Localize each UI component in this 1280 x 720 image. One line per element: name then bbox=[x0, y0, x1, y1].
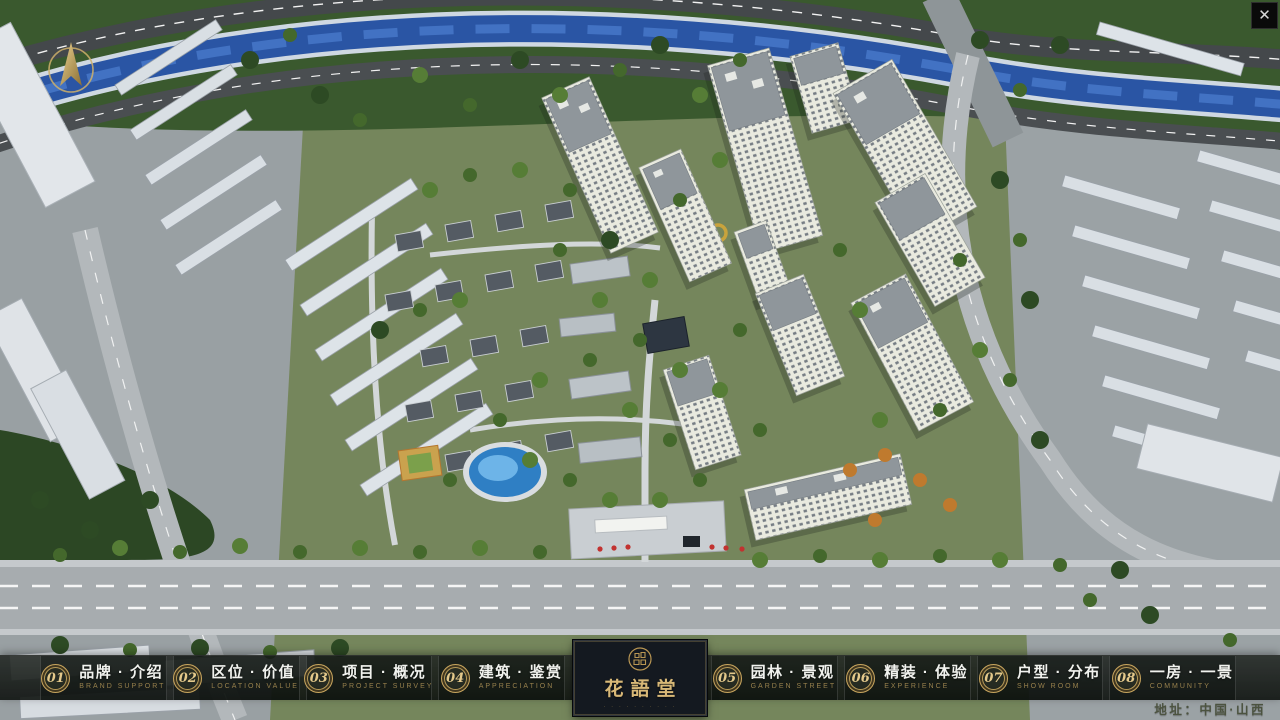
nav-number: 05 bbox=[718, 671, 736, 686]
swimming-pool bbox=[463, 442, 547, 502]
nav-number-badge: 06 bbox=[846, 664, 875, 693]
nav-label-zh: 精装 · 体验 bbox=[884, 665, 968, 682]
main-entrance bbox=[569, 501, 745, 559]
nav-label-zh: 品牌 · 介绍 bbox=[79, 665, 163, 682]
nav-item-architecture[interactable]: 04 建筑 · 鉴赏APPRECIATION bbox=[438, 656, 565, 700]
nav-label-en: APPRECIATION bbox=[479, 683, 555, 691]
nav-label-zh: 区位 · 价值 bbox=[211, 665, 295, 682]
compass-north-icon bbox=[42, 38, 100, 98]
nav-number-badge: 03 bbox=[304, 664, 333, 693]
nav-item-location-value[interactable]: 02 区位 · 价值LOCATION VALUE bbox=[173, 656, 300, 700]
nav-number: 07 bbox=[984, 671, 1002, 686]
nav-item-project-overview[interactable]: 03 项目 · 概况PROJECT SURVEY bbox=[306, 656, 433, 700]
nav-number-badge: 02 bbox=[173, 664, 202, 693]
nav-number: 08 bbox=[1117, 671, 1135, 686]
close-button[interactable]: ✕ bbox=[1251, 2, 1278, 29]
nav-number-badge: 05 bbox=[713, 664, 742, 693]
nav-label-zh: 园林 · 景观 bbox=[751, 665, 835, 682]
nav-label-zh: 一房 · 一景 bbox=[1150, 665, 1234, 682]
nav-label-en: COMMUNITY bbox=[1150, 683, 1211, 691]
nav-number: 03 bbox=[310, 671, 328, 686]
nav-label-zh: 建筑 · 鉴赏 bbox=[479, 665, 563, 682]
nav-label-en: BRAND SUPPORT bbox=[79, 683, 165, 691]
nav-label-en: EXPERIENCE bbox=[884, 683, 949, 691]
nav-item-landscape[interactable]: 05 园林 · 景观GARDEN STREET bbox=[711, 656, 838, 700]
nav-label-en: GARDEN STREET bbox=[751, 683, 837, 691]
project-logo-tagline: · · · · · · · · · · bbox=[604, 704, 677, 710]
nav-item-floorplan-distribution[interactable]: 07 户型 · 分布SHOW ROOM bbox=[977, 656, 1104, 700]
nav-number: 04 bbox=[446, 671, 464, 686]
project-logo-panel: 花語堂 · · · · · · · · · · bbox=[573, 640, 707, 716]
nav-label-en: LOCATION VALUE bbox=[211, 683, 299, 691]
nav-number: 06 bbox=[852, 671, 870, 686]
nav-item-interior-experience[interactable]: 06 精装 · 体验EXPERIENCE bbox=[844, 656, 971, 700]
nav-number: 01 bbox=[47, 671, 65, 686]
nav-number: 02 bbox=[179, 671, 197, 686]
nav-number-badge: 04 bbox=[441, 664, 470, 693]
nav-number-badge: 01 bbox=[41, 664, 70, 693]
project-address: 地址：中国·山西 bbox=[1154, 699, 1266, 718]
presentation-window: ✕ 01 品牌 · 介绍BRAND SUPPORT 02 区位 · 价值LOCA… bbox=[0, 0, 1280, 720]
masterplan-aerial-render bbox=[0, 0, 1280, 720]
nav-label-en: PROJECT SURVEY bbox=[342, 683, 433, 691]
project-logo-name: 花語堂 bbox=[597, 674, 682, 701]
nav-label-zh: 项目 · 概况 bbox=[342, 665, 426, 682]
seal-emblem-icon bbox=[627, 646, 653, 672]
nav-item-room-view[interactable]: 08 一房 · 一景COMMUNITY bbox=[1109, 656, 1236, 700]
nav-label-en: SHOW ROOM bbox=[1017, 683, 1081, 691]
nav-number-badge: 08 bbox=[1112, 664, 1141, 693]
nav-label-zh: 户型 · 分布 bbox=[1017, 665, 1101, 682]
nav-item-brand-intro[interactable]: 01 品牌 · 介绍BRAND SUPPORT bbox=[40, 656, 167, 700]
nav-number-badge: 07 bbox=[979, 664, 1008, 693]
